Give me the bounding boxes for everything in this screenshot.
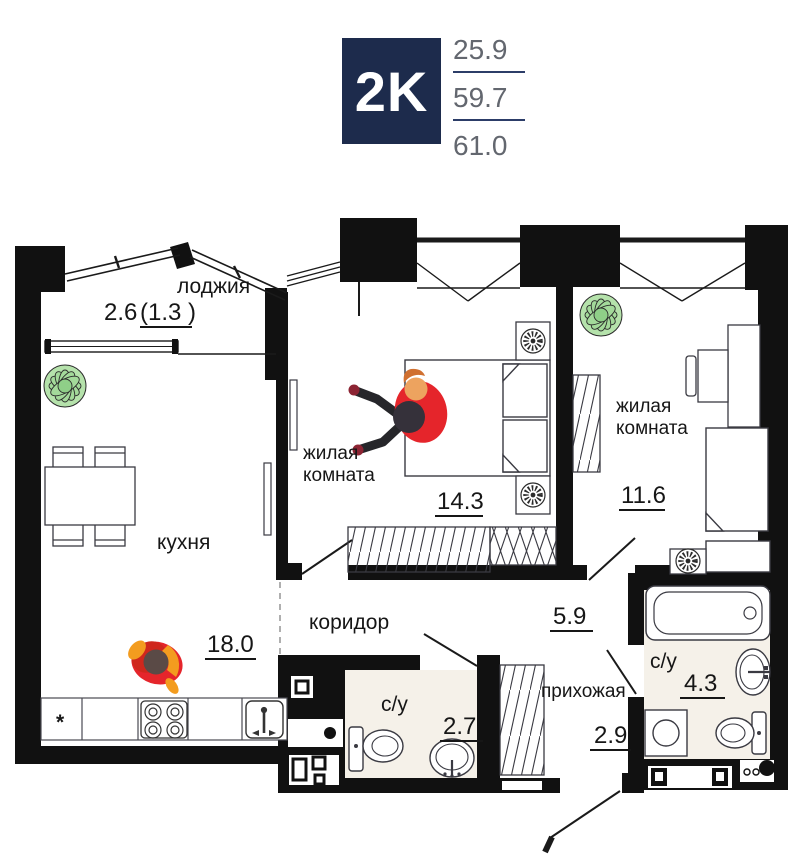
label-loggia: лоджия: [177, 275, 250, 298]
label-bedroom1-line1: жилая: [303, 443, 358, 464]
area-toilet: 2.7: [443, 713, 476, 740]
person-cooking-icon: [125, 635, 189, 696]
fridge-symbol: *: [56, 711, 65, 734]
area-bedroom2: 11.6: [621, 482, 666, 509]
pillow: [503, 364, 547, 417]
pillow: [503, 420, 547, 472]
bathtub-icon: [646, 586, 770, 640]
floor-plan: *: [0, 0, 800, 858]
radiator: [264, 463, 271, 535]
label-toilet: с/у: [381, 693, 408, 716]
kitchen-sink-icon: [246, 701, 283, 738]
wardrobe: [348, 527, 556, 572]
area-loggia-coef: (1.3 ): [140, 299, 196, 326]
plant-icon: [580, 294, 622, 336]
wardrobe-base-slot: [502, 781, 542, 790]
bedroom1-door-swing: [302, 540, 352, 574]
nightstand: [516, 476, 550, 514]
loggia-glazing-window: [65, 248, 287, 300]
plant-icon: [44, 365, 86, 407]
label-bedroom2-line1: жилая: [616, 396, 671, 417]
dining-set: [45, 447, 135, 546]
area-bathroom: 4.3: [684, 670, 717, 697]
nightstand: [670, 549, 706, 574]
stove-icon: [141, 701, 187, 738]
washbasin-icon: [736, 649, 770, 695]
label-hallway: прихожая: [541, 681, 626, 702]
label-kitchen: кухня: [157, 531, 210, 554]
floorplan-page: 2K 25.9 59.7 61.0: [0, 0, 800, 858]
desk: [686, 325, 760, 427]
desk-chair: [686, 356, 696, 396]
lamp-icon: [521, 483, 545, 507]
lamp-icon: [521, 329, 545, 353]
area-hallway: 2.9: [594, 722, 627, 749]
toilet-door-swing: [424, 634, 477, 666]
area-loggia: 2.6: [104, 299, 137, 326]
entrance-door-leaf: [545, 837, 552, 852]
washing-machine-icon: [645, 710, 687, 756]
radiator: [290, 380, 297, 450]
loggia-kitchen-window: [45, 339, 178, 354]
lamp-icon: [676, 549, 700, 573]
single-bed: [706, 428, 770, 572]
wardrobe: [573, 375, 600, 472]
washbasin-icon: [430, 739, 474, 778]
entrance-door-swing: [550, 791, 620, 838]
towel-rail-icon: [648, 766, 732, 788]
label-corridor: коридор: [309, 611, 389, 634]
label-bedroom1-line2: комната: [303, 465, 375, 486]
wardrobe: [500, 665, 544, 775]
bedroom2-window: [620, 240, 745, 301]
nightstand: [516, 322, 550, 360]
area-corridor: 5.9: [553, 603, 586, 630]
area-bedroom1: 14.3: [437, 488, 484, 515]
area-kitchen: 18.0: [207, 631, 254, 658]
label-bathroom: с/у: [650, 650, 677, 673]
electrical-panel-icon: [740, 760, 775, 782]
dining-table: [45, 467, 135, 525]
bedroom1-window: [417, 240, 520, 301]
label-bedroom2-line2: комната: [616, 418, 688, 439]
